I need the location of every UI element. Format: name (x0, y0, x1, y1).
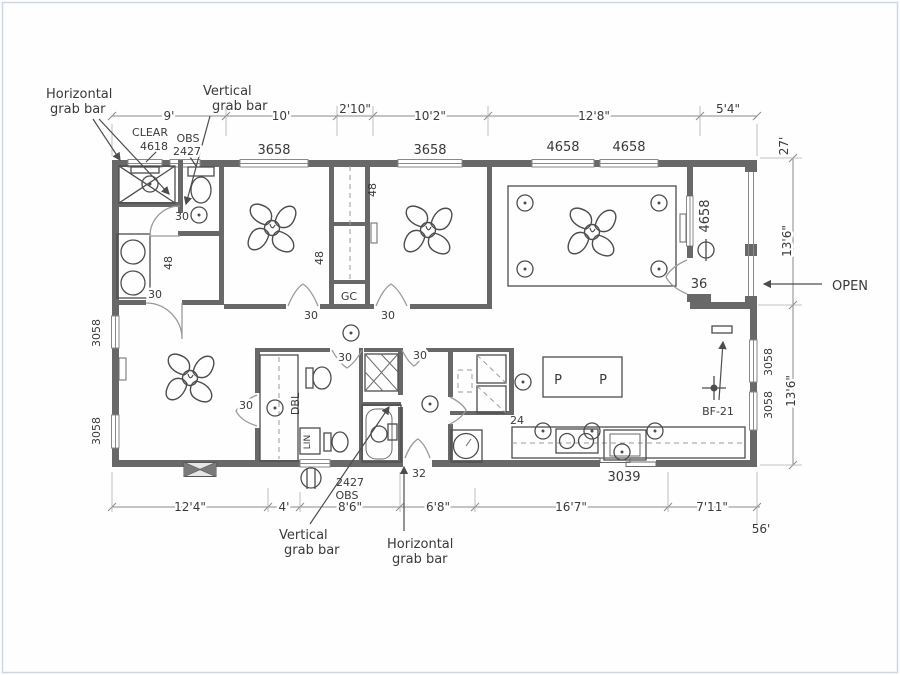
door-label-36: 36 (691, 277, 708, 292)
window-left-3058-b (112, 415, 120, 448)
dim-top-2ft10: 2'10" (339, 102, 371, 116)
shower-stall (119, 166, 175, 203)
dim-bottom-7ft11: 7'11" (696, 500, 728, 514)
door-label-30-hallbath: 30 (413, 349, 427, 362)
dim-bottom-16ft7: 16'7" (555, 500, 587, 514)
dim-rear-depth: 13'6" (784, 375, 798, 407)
dim-overall-width: 56' (752, 522, 771, 536)
obs-window-bottom-label-1: 2427 (336, 476, 364, 489)
porch-post (745, 160, 757, 172)
door-label-30-bedroom3: 30 (381, 309, 395, 322)
bathtub (362, 405, 401, 462)
hall-shower (365, 354, 398, 391)
door-laundry (450, 397, 466, 424)
vertical-grab-bar-top-label-2: grab bar (212, 99, 268, 114)
floor-plan-page: Horizontal grab bar Vertical grab bar CL… (0, 0, 900, 675)
closet-48-a: 48 (162, 256, 175, 270)
window-left-3058-a (112, 316, 120, 348)
light-hall2 (422, 396, 438, 412)
slider-label-3039: 3039 (607, 470, 640, 485)
ceiling-fan-living (568, 208, 616, 256)
door-bath-exterior (405, 439, 430, 458)
light-tray-ne (651, 195, 667, 211)
laundry-appliances (458, 355, 506, 413)
windows (112, 160, 758, 468)
lin-label: LIN (303, 435, 313, 449)
horizontal-grab-bar-top-label-1: Horizontal (46, 87, 112, 102)
leader-horizontal-grab-top-1 (93, 119, 120, 160)
window-label-4658-a: 4658 (546, 140, 579, 155)
closet-48-c: 48 (366, 183, 379, 197)
step-hatch (184, 463, 216, 477)
window-top-3658-b (398, 160, 462, 168)
door-label-30-bedroom2: 30 (304, 309, 318, 322)
ceiling-fan-bedroom1 (166, 354, 214, 402)
kitchen-sink (556, 429, 598, 453)
door-label-30-bedroom1: 30 (239, 399, 253, 412)
light-counter1 (535, 423, 551, 439)
sink-master-bath (324, 432, 348, 452)
vertical-grab-bar-bottom-label-2: grab bar (284, 543, 340, 558)
window-label-right-3058-a: 3058 (762, 348, 775, 376)
dim-bottom-8ft6: 8'6" (338, 500, 362, 514)
door-swings (146, 206, 687, 458)
window-right-3058-b (750, 392, 758, 430)
bf21-arrow (719, 342, 723, 400)
porch-light (698, 239, 714, 261)
light-hall (343, 325, 359, 341)
window-label-left-3058-b: 3058 (90, 417, 103, 445)
clear-window-label-2: 4618 (140, 140, 168, 153)
vertical-grab-bar-top-label-1: Vertical (203, 84, 252, 99)
window-label-4658-b: 4658 (612, 140, 645, 155)
door-bedroom2 (288, 284, 318, 306)
window-label-left-3058-a: 3058 (90, 319, 103, 347)
window-top-4658-a (532, 160, 594, 168)
porch-post (745, 296, 757, 308)
window-bottom-obs-2427 (300, 460, 330, 468)
horizontal-grab-bar-top-label-2: grab bar (50, 102, 106, 117)
dim-bottom-4ft: 4' (279, 500, 290, 514)
door-label-30-frontbath: 30 (148, 288, 162, 301)
porch-railing (749, 172, 754, 296)
horizontal-grab-bar-bottom-label-2: grab bar (392, 552, 448, 567)
gc-label: GC (341, 290, 358, 303)
door-label-30-toilet: 30 (175, 210, 189, 223)
dim-top-5ft4: 5'4" (716, 102, 740, 116)
door-front-bath (146, 303, 182, 339)
door-bedroom3 (376, 284, 407, 306)
washer-dryer (117, 234, 150, 298)
dim-overall-depth: 27' (777, 137, 791, 156)
light-tray-se (651, 261, 667, 277)
window-top-4658-b (600, 160, 658, 168)
light-tray-sw (517, 261, 533, 277)
wall-cabinet (371, 223, 377, 243)
counter-24-label: 24 (510, 414, 524, 427)
door-label-32: 32 (412, 467, 426, 480)
egress-window-symbol (301, 468, 321, 489)
light-master-bath (267, 400, 283, 416)
window-right-3058-a (750, 340, 758, 382)
wall-cabinet (119, 358, 126, 380)
window-label-right-3058-b: 3058 (762, 391, 775, 419)
vertical-grab-bar-bottom-label-1: Vertical (279, 528, 328, 543)
ceiling-fan-bedroom3 (404, 206, 452, 254)
kitchen-counter (512, 427, 745, 458)
exterior-walls (112, 160, 757, 467)
pantry-label-1: P (554, 373, 562, 388)
water-heater (451, 430, 482, 462)
toilet-front-bath (188, 167, 214, 203)
light-kitchen (515, 374, 531, 390)
floor-plan-canvas: Horizontal grab bar Vertical grab bar CL… (0, 0, 900, 675)
window-label-porch-4658: 4658 (698, 199, 713, 232)
door-label-30-masterbath: 30 (338, 351, 352, 364)
obs-window-top-label-1: OBS (177, 132, 200, 145)
light-tray-nw (517, 195, 533, 211)
window-label-3658-b: 3658 (413, 143, 446, 158)
bath-fan-symbol (702, 376, 726, 400)
pantry-label-2: P (599, 373, 607, 388)
scan-border (3, 3, 898, 673)
wall-register (712, 326, 732, 333)
window-top-3658-a (240, 160, 308, 168)
patio-slider-door (600, 458, 656, 467)
closet-48-b: 48 (313, 251, 326, 265)
clear-window-label-1: CLEAR (132, 126, 168, 139)
window-label-3658-a: 3658 (257, 143, 290, 158)
dim-top-10ft: 10' (272, 109, 291, 123)
ceiling-fans (166, 204, 616, 402)
dim-top-12ft8: 12'8" (578, 109, 610, 123)
dim-top-9ft: 9' (164, 109, 175, 123)
ceiling-fan-bedroom2 (248, 204, 296, 252)
open-label: OPEN (832, 279, 868, 294)
dim-top-10ft2: 10'2" (414, 109, 446, 123)
dim-porch-depth: 13'6" (780, 225, 794, 257)
light-toilet-room (191, 207, 207, 223)
window-porch-4658 (680, 196, 693, 246)
light-shower (142, 176, 158, 192)
dim-bottom-6ft8: 6'8" (426, 500, 450, 514)
fixtures (117, 166, 745, 489)
horizontal-grab-bar-bottom-label-1: Horizontal (387, 537, 453, 552)
dim-bottom-12ft4: 12'4" (174, 500, 206, 514)
dbl-label: DBL (289, 392, 302, 415)
light-counter3 (647, 423, 663, 439)
labels: Horizontal grab bar Vertical grab bar CL… (46, 84, 868, 567)
porch-post (745, 244, 757, 256)
toilet-master-bath (306, 367, 331, 389)
obs-window-top-label-2: 2427 (173, 145, 201, 158)
bf21-label: BF-21 (702, 405, 734, 418)
